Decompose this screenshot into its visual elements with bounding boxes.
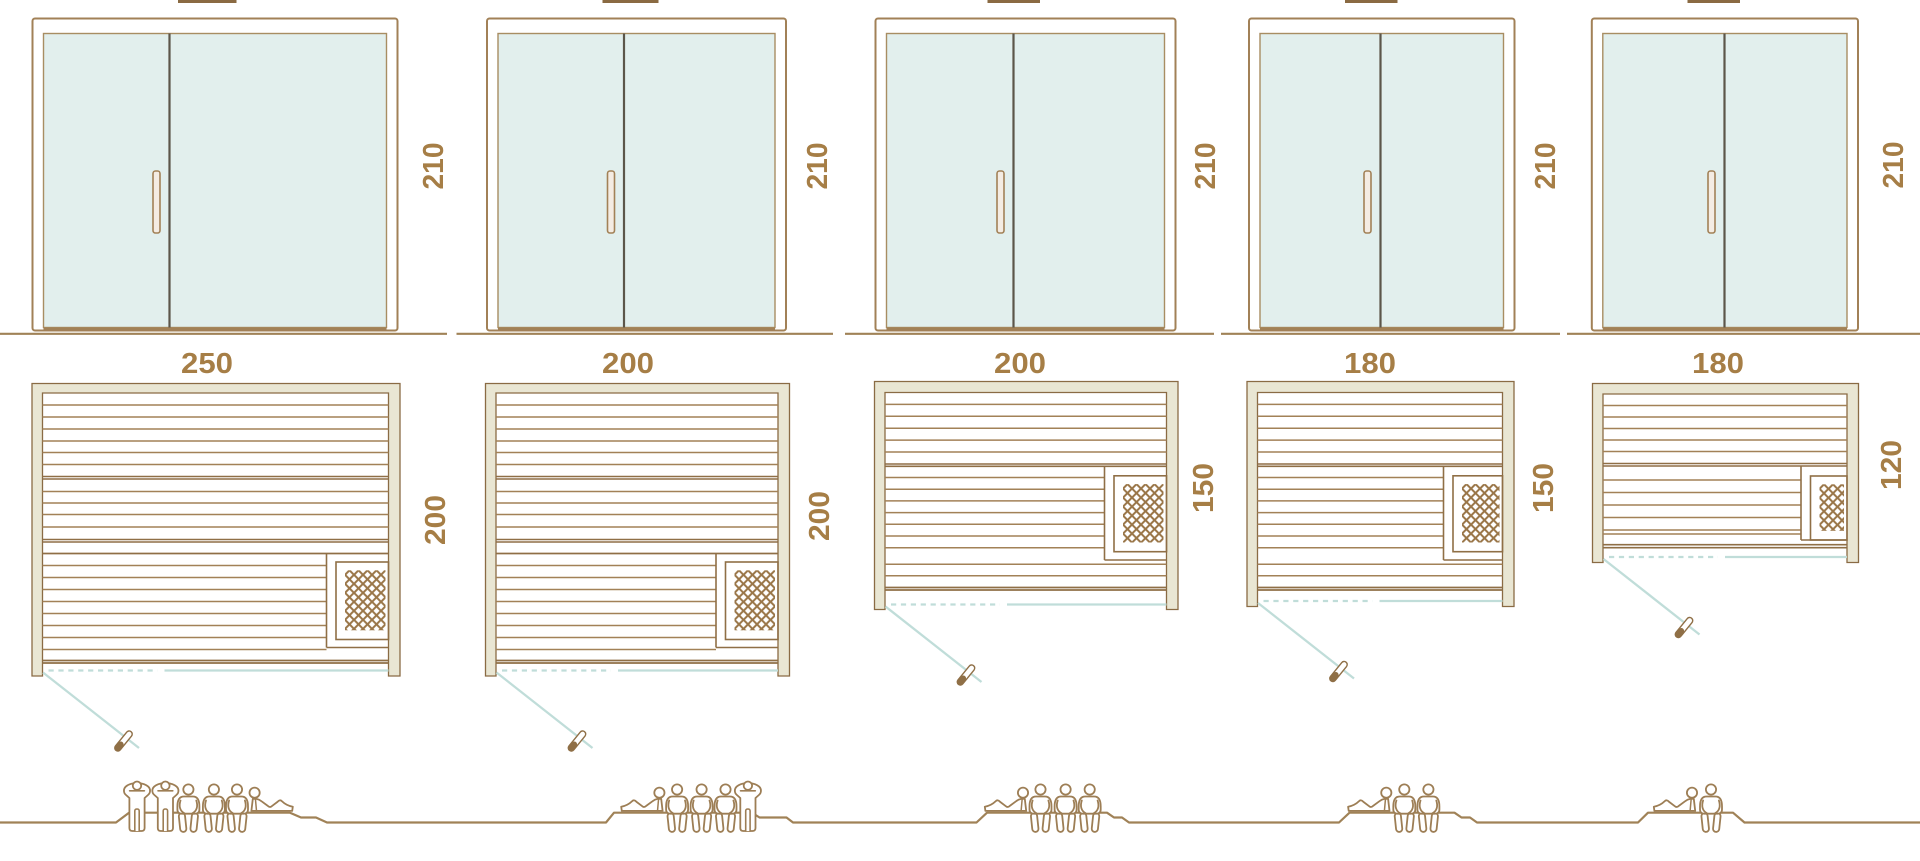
svg-text:150: 150 xyxy=(1188,463,1220,513)
svg-text:200: 200 xyxy=(994,348,1046,380)
svg-text:210: 210 xyxy=(418,143,450,190)
svg-text:250: 250 xyxy=(181,348,233,380)
svg-text:210: 210 xyxy=(1190,143,1222,190)
svg-text:210: 210 xyxy=(1878,142,1910,189)
svg-text:200: 200 xyxy=(804,491,836,541)
svg-text:180: 180 xyxy=(1344,348,1396,380)
svg-text:120: 120 xyxy=(1876,440,1908,490)
svg-text:200: 200 xyxy=(420,495,452,545)
svg-text:180: 180 xyxy=(1692,348,1744,380)
svg-text:210: 210 xyxy=(802,143,834,190)
svg-text:210: 210 xyxy=(1530,143,1562,190)
svg-text:150: 150 xyxy=(1528,463,1560,513)
svg-text:200: 200 xyxy=(602,348,654,380)
